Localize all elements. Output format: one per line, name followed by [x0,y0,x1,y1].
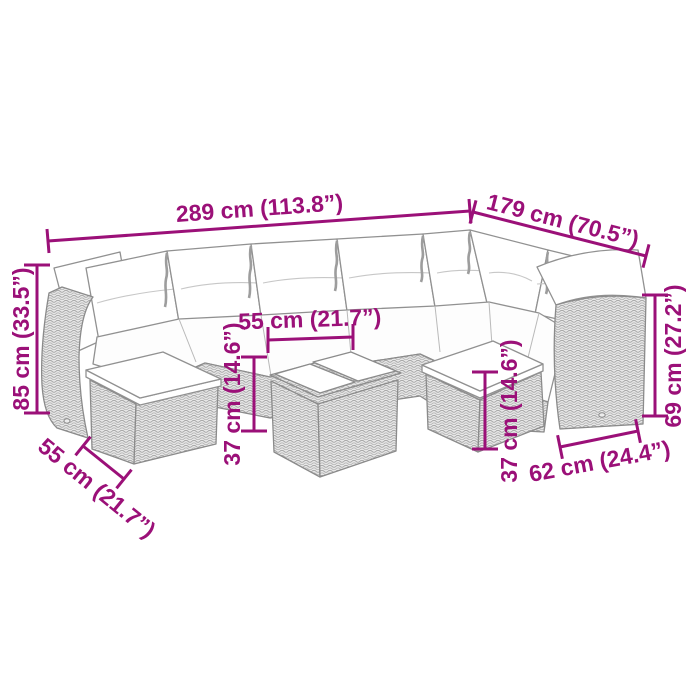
dim-label-sofa-height: 85 cm (33.5”) [8,267,34,410]
cushion-tie [249,246,251,298]
cushion-tie [165,253,167,307]
cushion-tie [468,232,470,274]
dim-label-stool-depth: 62 cm (24.4”) [527,435,673,487]
dim-label-armrest-height: 69 cm (27.2”) [660,284,686,427]
cushion-tie [335,241,337,291]
dimension-diagram: 289 cm (113.8”) 179 cm (70.5”) 85 cm (33… [0,0,700,700]
sofa-set-line-art [42,230,646,477]
dim-label-table-height: 37 cm (14.6”) [219,322,245,465]
dim-label-table-top: 55 cm (21.7”) [238,304,382,335]
right-armrest-panel [554,296,646,429]
dim-label-stool-height: 37 cm (14.6”) [496,339,522,482]
diagram-canvas: 289 cm (113.8”) 179 cm (70.5”) 85 cm (33… [0,0,700,700]
cushion-tie [421,236,423,282]
left-armrest [42,287,93,438]
armrest-foot [599,413,605,417]
coffee-table [270,352,401,477]
armrest-foot [64,419,70,423]
